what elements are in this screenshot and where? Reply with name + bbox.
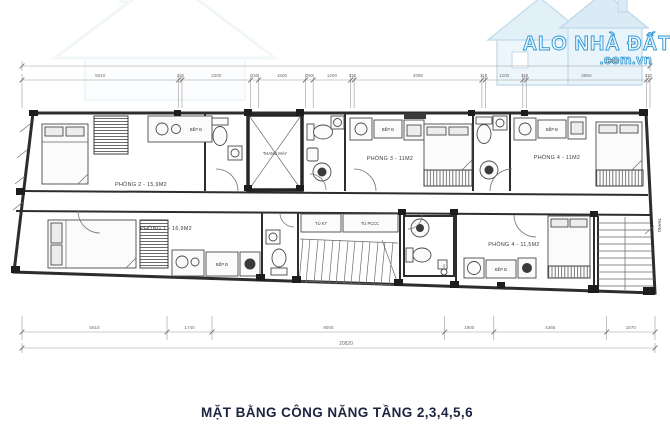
dim-segment-label: 110	[349, 73, 357, 78]
elevator-label: THANG MÁY	[263, 151, 288, 156]
dim-segment-label: 5010	[95, 73, 106, 78]
kitchen-room4-bottom: BẾP Đ	[464, 258, 536, 278]
dim-segment-label: 1200	[327, 73, 338, 78]
cabinet-pccc-label: TỦ PCCC	[361, 221, 379, 226]
floor-plan-image: ALO NHÀ ĐẤT .com.vn 50101102200250150025…	[0, 0, 670, 430]
dim-segment-label: 1500	[277, 73, 288, 78]
kitchen-label: BẾP Đ	[216, 262, 228, 267]
room4-bottom-label: PHÒNG 4 - 11,5M2	[488, 241, 539, 248]
kitchen-room1: BẾP Đ	[172, 250, 260, 276]
floor-plan-svg: ALO NHÀ ĐẤT .com.vn 50101102200250150025…	[0, 0, 670, 430]
bed-room4-top	[596, 122, 643, 186]
bed-room3	[424, 124, 472, 186]
dim-segment-label: 250	[305, 73, 313, 78]
dim-segment-label: 4090	[413, 73, 424, 78]
dim-segment-label: 110	[177, 73, 185, 78]
watermark-house-left-icon	[55, 0, 275, 100]
kitchen-label: BẾP Đ	[190, 127, 202, 132]
kitchen-room4-top: BẾP Đ	[514, 117, 586, 140]
dim-segment-label: 5610	[89, 325, 100, 330]
dimension-line-bottom: 56101740900019004365187020820	[20, 316, 658, 353]
dim-segment-label: 110	[645, 73, 653, 78]
dim-segment-label: 110	[521, 73, 529, 78]
cabinet-pccc: TỦ PCCC	[343, 214, 398, 232]
dim-segment-label: 250	[251, 73, 259, 78]
dim-segment-label: 1900	[464, 325, 475, 330]
room3-label: PHÒNG 3 - 11M2	[367, 155, 413, 162]
stairs-label: THANG	[657, 218, 662, 232]
kitchen-label: BẾP Đ	[495, 267, 507, 272]
wardrobe-room2	[94, 116, 128, 154]
kitchen-label: BẾP Đ	[546, 127, 558, 132]
dim-segment-label: 110	[480, 73, 488, 78]
bed-room4-bottom	[548, 216, 590, 278]
room2-label: PHÒNG 2 - 15,9M2	[115, 181, 167, 188]
dim-segment-label: 1740	[184, 325, 195, 330]
dim-total-label: 20086	[605, 59, 619, 65]
dim-segment-label: 9000	[323, 325, 334, 330]
dim-segment-label: 3850	[581, 73, 592, 78]
bed-room2	[42, 124, 88, 184]
dim-segment-label: 4365	[545, 325, 556, 330]
kitchen-room2: BẾP Đ	[148, 116, 212, 142]
bed-room1	[48, 220, 136, 268]
cabinet-kt-label: TỦ KT	[315, 221, 327, 226]
kitchen-label: BẾP Đ	[382, 127, 394, 132]
page-title: MẶT BẰNG CÔNG NĂNG TẦNG 2,3,4,5,6	[201, 405, 473, 420]
dim-segment-label: 2200	[211, 73, 222, 78]
room4-top-label: PHÒNG 4 - 11M2	[534, 154, 580, 161]
cabinet-kt: TỦ KT	[301, 214, 341, 232]
dim-segment-label: 1870	[626, 325, 637, 330]
dim-total-label: 20820	[339, 341, 353, 347]
room1-label: PHÒNG 1 - 16,9M2	[140, 225, 192, 232]
dim-segment-label: 1200	[499, 73, 510, 78]
